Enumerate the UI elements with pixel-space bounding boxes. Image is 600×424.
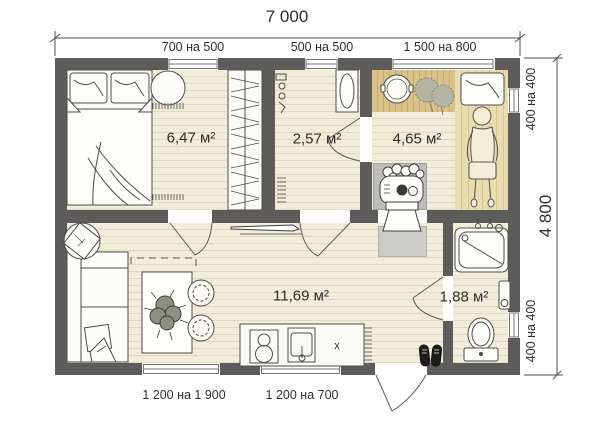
loft-dashed-outline: [131, 258, 196, 268]
sofa: [67, 252, 128, 362]
wall-shelf-object: [231, 225, 302, 234]
bedroom-door-leaf: [170, 223, 195, 255]
washroom-door-arc: [300, 223, 318, 256]
dim-window-bottom-2: 1 200 на 700: [266, 388, 339, 402]
bedroom-door-arc: [195, 223, 212, 255]
toilet: [464, 318, 498, 361]
plan-line-art: [0, 0, 600, 424]
entrance-door-arc: [392, 375, 426, 411]
dim-overall-height: 4 800: [536, 195, 556, 238]
sauna-tub: [381, 75, 413, 103]
washroom-door-leaf: [318, 223, 350, 256]
dim-window-top-1: 700 на 500: [162, 40, 225, 54]
double-bed: [67, 70, 152, 205]
steamroom-area-label: 4,65 м²: [393, 131, 442, 148]
bathroom-door-arc: [413, 298, 443, 320]
shower-tray: [455, 219, 508, 272]
dim-window-top-2: 500 на 500: [291, 40, 354, 54]
dim-window-bottom-1: 1 200 на 1 900: [142, 388, 225, 402]
bath-brooms: [415, 78, 454, 115]
doormat-grate: [364, 328, 372, 364]
water-heater: [499, 281, 510, 309]
wall-mixer: [276, 74, 286, 113]
washroom-area-label: 2,57 м²: [293, 131, 342, 148]
towel-rack: [277, 178, 286, 202]
dim-window-top-3: 1 500 на 800: [404, 40, 477, 54]
dim-overall-width: 7 000: [266, 7, 309, 27]
dim-window-right-bottom: 400 на 400: [524, 300, 538, 363]
shoes: [419, 344, 442, 366]
lounge-area-label: 11,69 м²: [273, 288, 329, 305]
bedside-pouf: [151, 71, 185, 105]
kitchen-counter: [240, 324, 364, 366]
wardrobe: [228, 70, 262, 210]
bathroom-door-leaf: [413, 277, 443, 298]
round-chair: [64, 223, 100, 259]
bathroom-area-label: 1,88 м²: [440, 289, 489, 306]
entrance-door-leaf: [376, 375, 392, 411]
floor-plan: 7 000 700 на 500 500 на 500 1 500 на 800…: [0, 0, 600, 424]
sauna-stove: [380, 164, 424, 231]
bedside-rug-fringe: [153, 103, 183, 200]
door-swings: [170, 118, 443, 411]
sauna-pillow: [461, 73, 504, 105]
bedroom-area-label: 6,47 м²: [167, 130, 216, 147]
washroom-vanity: [336, 70, 358, 112]
person-figure: [467, 107, 497, 207]
counter-mark: х: [334, 340, 340, 352]
dim-window-right-top: 400 на 400: [524, 68, 538, 131]
